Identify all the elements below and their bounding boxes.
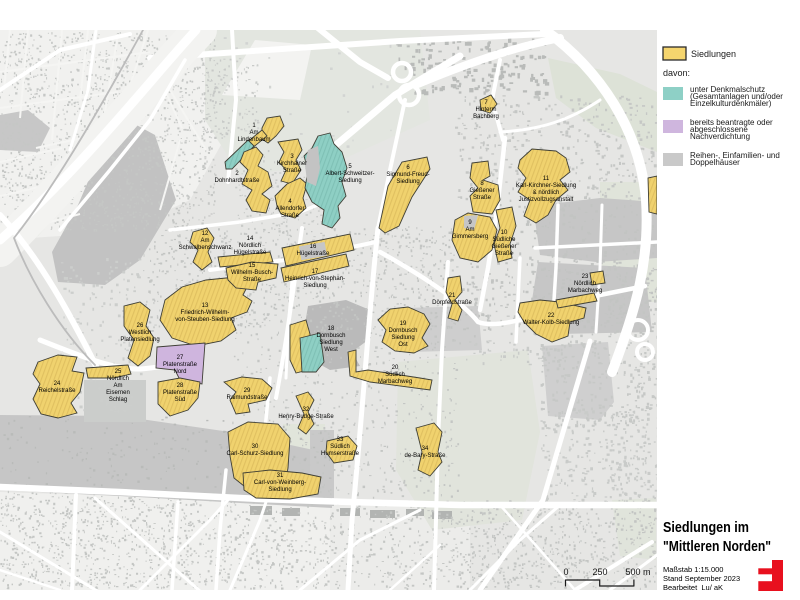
svg-text:0: 0 bbox=[563, 567, 568, 577]
svg-text:500 m: 500 m bbox=[625, 567, 650, 577]
svg-text:Maßstab 1:15.000: Maßstab 1:15.000 bbox=[663, 565, 723, 574]
svg-text:Bearbeitet Lu/ aK: Bearbeitet Lu/ aK bbox=[663, 583, 723, 592]
svg-text:"Mittleren Norden": "Mittleren Norden" bbox=[663, 538, 771, 555]
svg-text:Stand September 2023: Stand September 2023 bbox=[663, 574, 740, 583]
svg-text:250: 250 bbox=[592, 567, 607, 577]
svg-text:Siedlungen im: Siedlungen im bbox=[663, 519, 749, 536]
svg-text:Siedlungen: Siedlungen bbox=[691, 49, 736, 59]
svg-text:davon:: davon: bbox=[663, 68, 690, 78]
